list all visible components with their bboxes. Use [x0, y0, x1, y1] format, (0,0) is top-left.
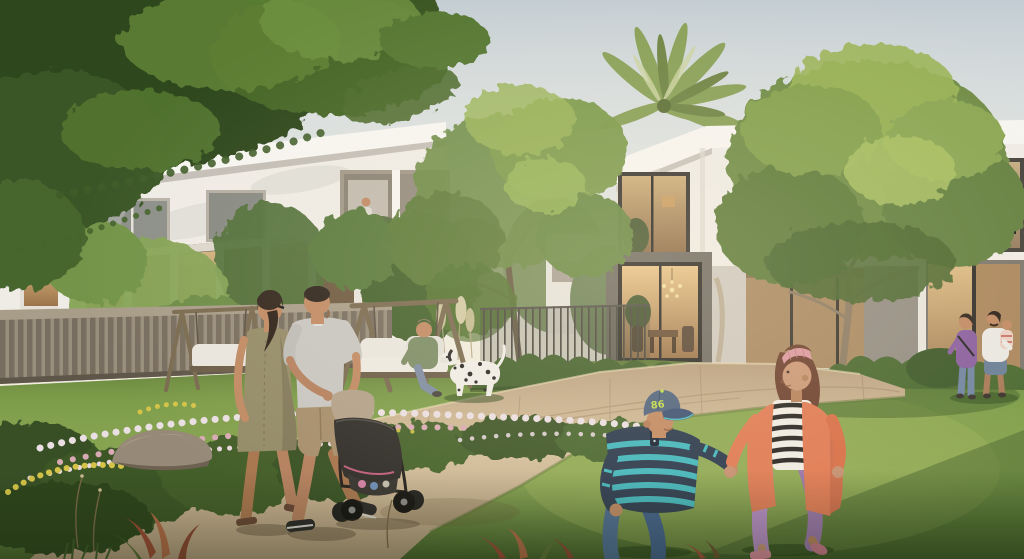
community-render: 86 — [0, 0, 1024, 559]
vignette-overlay — [0, 470, 1024, 559]
scene-svg: 86 — [0, 0, 1024, 559]
